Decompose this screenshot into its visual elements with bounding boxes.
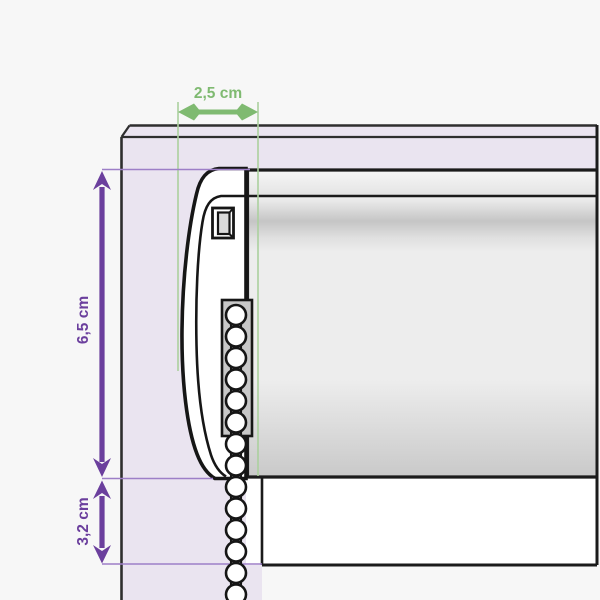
- sill: [246, 477, 597, 565]
- chain: [226, 305, 246, 600]
- roller-shade: [247, 196, 597, 252]
- sill-face: [246, 477, 597, 565]
- diagram-stage: Látková MAXI- vrtání na okno: [0, 0, 600, 600]
- dimension-label-bottom: 3,2 cm: [75, 497, 92, 545]
- frame-top-member: [122, 137, 598, 171]
- chain-beads: [226, 305, 246, 600]
- hook-inner: [218, 213, 230, 235]
- dimension-label-side: 6,5 cm: [75, 296, 92, 344]
- frame-top-face: [122, 126, 598, 138]
- mounting-hook: [213, 208, 234, 238]
- cassette-top-strip: [247, 170, 597, 196]
- blind-mounting-diagram: 2,5 cm 6,5 cm 3,2 cm: [0, 0, 600, 600]
- dimension-label-top: 2,5 cm: [194, 85, 242, 102]
- fabric-bottom-shade: [247, 380, 597, 477]
